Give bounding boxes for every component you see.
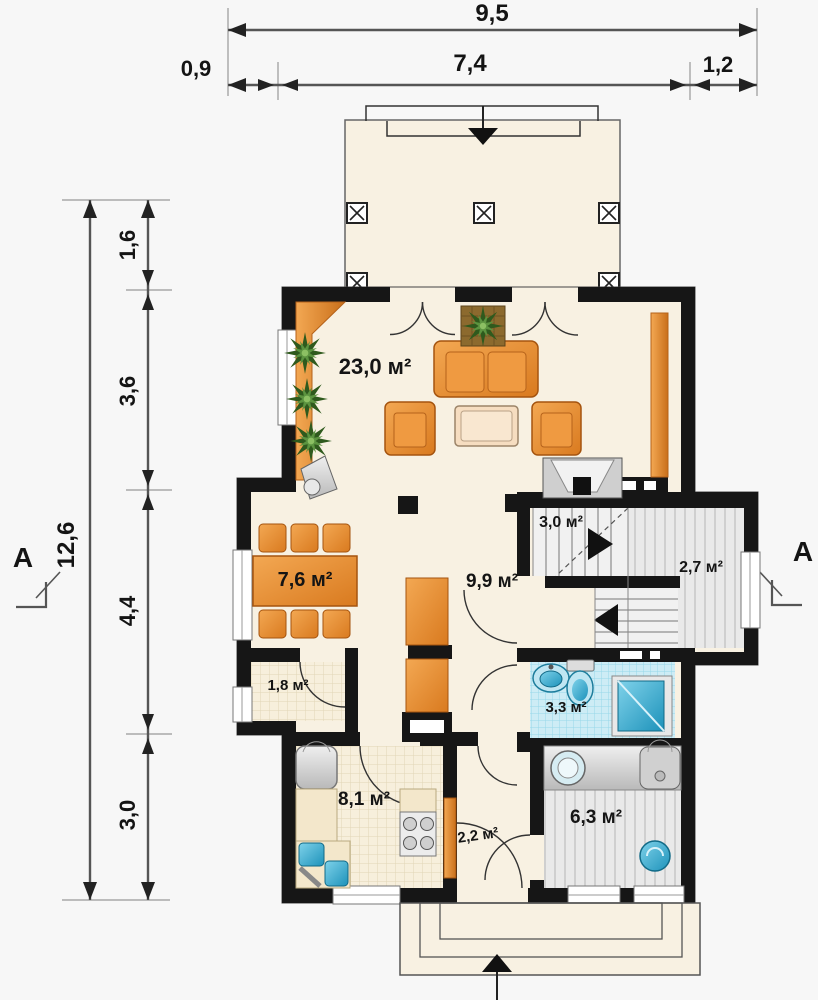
plant-icon bbox=[284, 332, 326, 374]
floor-plan-drawing bbox=[0, 0, 818, 1000]
room-label-bath: 3,3 м² bbox=[534, 700, 598, 715]
window-utility-bottom-1 bbox=[568, 886, 620, 904]
window-wc-left bbox=[233, 687, 252, 722]
room-label-kitchen: 8,1 м² bbox=[326, 790, 402, 809]
stove bbox=[400, 812, 436, 856]
sink bbox=[533, 664, 569, 692]
pillar-icon bbox=[347, 203, 367, 223]
chair bbox=[323, 524, 350, 552]
section-marker-left-line bbox=[16, 572, 60, 607]
sideboard-right bbox=[651, 313, 668, 477]
floor-drain bbox=[640, 841, 670, 871]
window-landing-right bbox=[741, 552, 760, 628]
entrance-porch bbox=[400, 903, 700, 1000]
sofa bbox=[434, 341, 538, 397]
dim-top-seg-1: 0,9 bbox=[166, 58, 226, 80]
dim-left-seg-1: 1,6 bbox=[117, 215, 139, 275]
room-label-utility: 6,3 м² bbox=[558, 808, 634, 827]
plant-icon bbox=[290, 420, 332, 462]
section-marker-left-label: A bbox=[6, 544, 40, 572]
floor-plan-canvas: 9,5 0,9 7,4 1,2 12,6 1,6 3,6 4,4 3,0 A A… bbox=[0, 0, 818, 1000]
room-label-stairs: 3,0 м² bbox=[528, 515, 594, 531]
fireplace bbox=[543, 458, 622, 498]
room-label-wc: 1,8 м² bbox=[256, 678, 320, 693]
coffee-table bbox=[455, 406, 518, 446]
dim-left-seg-4: 3,0 bbox=[117, 785, 139, 845]
sink-bowl bbox=[299, 843, 324, 866]
chair bbox=[291, 610, 318, 638]
room-label-dining: 7,6 м² bbox=[265, 570, 345, 590]
shower bbox=[612, 676, 672, 736]
room-label-living: 23,0 м² bbox=[330, 356, 420, 378]
plant-pot-top bbox=[461, 306, 505, 346]
window-kitchen-bottom bbox=[333, 886, 400, 904]
sink-bowl bbox=[325, 861, 348, 886]
window-living-left bbox=[278, 330, 297, 425]
chair bbox=[259, 610, 286, 638]
room-label-landing: 2,7 м² bbox=[668, 560, 734, 576]
section-marker-right-line bbox=[758, 570, 802, 605]
chair bbox=[291, 524, 318, 552]
dim-top-overall: 9,5 bbox=[452, 2, 532, 26]
window-dining-left bbox=[233, 550, 252, 640]
dim-left-seg-3: 4,4 bbox=[117, 581, 139, 641]
boiler bbox=[640, 740, 680, 789]
chair bbox=[259, 524, 286, 552]
pillar-icon bbox=[599, 203, 619, 223]
chair bbox=[323, 610, 350, 638]
dim-left-seg-2: 3,6 bbox=[117, 361, 139, 421]
hall-wardrobe bbox=[406, 578, 448, 712]
dim-top-seg-2: 7,4 bbox=[430, 52, 510, 76]
plant-icon bbox=[286, 378, 328, 420]
plant-icon bbox=[463, 306, 503, 346]
fridge bbox=[296, 742, 337, 789]
washing-machine bbox=[551, 751, 585, 785]
window-utility-bottom-2 bbox=[634, 886, 684, 904]
dim-left-overall: 12,6 bbox=[55, 514, 79, 576]
pillar-icon bbox=[474, 203, 494, 223]
armchair-right bbox=[532, 402, 581, 455]
room-label-hall: 9,9 м² bbox=[454, 572, 530, 591]
terrace bbox=[345, 106, 620, 300]
section-marker-right-label: A bbox=[786, 538, 818, 566]
armchair-left bbox=[385, 402, 435, 455]
dim-top-seg-3: 1,2 bbox=[688, 54, 748, 76]
